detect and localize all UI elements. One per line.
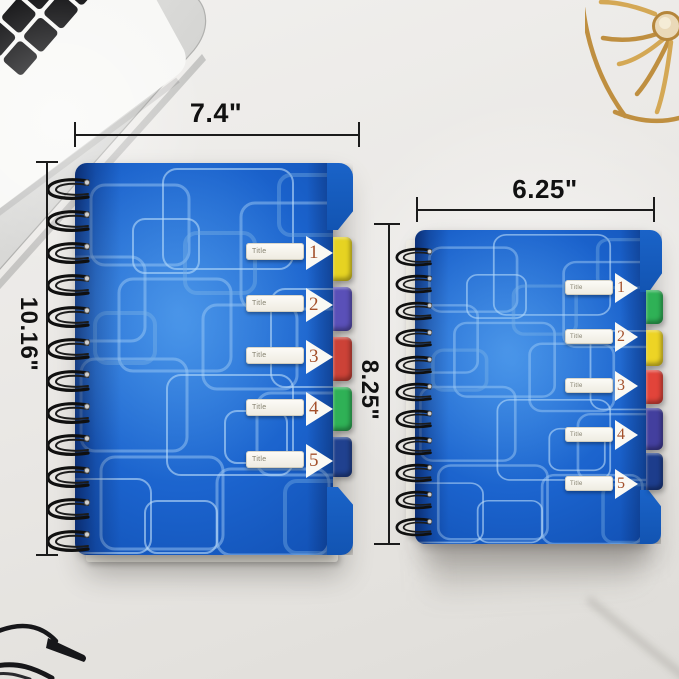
product-photo: Title 1 Title 2 Title 3 Title 4 Title 5 bbox=[0, 0, 679, 679]
tab-title-box: Title bbox=[565, 476, 613, 491]
tab-title-label: Title bbox=[246, 456, 266, 463]
tab-title-label: Title bbox=[565, 432, 583, 438]
soft-shadow bbox=[429, 538, 641, 591]
dimension-tick bbox=[36, 161, 58, 163]
dimension-tick bbox=[374, 223, 400, 225]
tab-number: 4 bbox=[309, 398, 319, 420]
dimension-line-width-small bbox=[417, 209, 655, 211]
tab-title-label: Title bbox=[246, 404, 266, 411]
tab-number: 1 bbox=[617, 279, 625, 297]
divider-side-tab-5 bbox=[646, 453, 663, 490]
tab-title-box: Title bbox=[565, 280, 613, 295]
tab-title-box: Title bbox=[246, 451, 304, 468]
dimension-line-height-small bbox=[388, 224, 390, 545]
cable-shadow bbox=[586, 597, 679, 679]
cover-corner-flap-top bbox=[327, 163, 353, 230]
tab-title-box: Title bbox=[246, 295, 304, 312]
divider-row-4: Title 4 bbox=[246, 391, 338, 427]
tab-number: 2 bbox=[309, 294, 319, 316]
divider-side-tab-4 bbox=[646, 408, 663, 450]
eyeglasses bbox=[0, 600, 120, 679]
tab-title-box: Title bbox=[246, 243, 304, 260]
tab-number: 5 bbox=[309, 450, 319, 472]
dimension-label-width-small: 6.25" bbox=[480, 174, 610, 204]
dimension-label-height-small: 8.25" bbox=[355, 325, 383, 455]
dimension-label-height-large: 10.16" bbox=[14, 269, 42, 399]
tab-number: 2 bbox=[617, 328, 625, 346]
tab-number: 3 bbox=[617, 377, 625, 395]
dimension-tick bbox=[36, 554, 58, 556]
dimension-label-width-large: 7.4" bbox=[151, 98, 281, 128]
cover-corner-flap-bottom bbox=[327, 487, 353, 555]
dimension-line-height-large bbox=[46, 162, 48, 556]
tab-number: 4 bbox=[617, 426, 625, 444]
divider-row-3: Title 3 bbox=[246, 339, 338, 375]
dimension-line-width-large bbox=[75, 134, 360, 136]
divider-side-tab-1 bbox=[646, 290, 663, 324]
tab-title-box: Title bbox=[246, 347, 304, 364]
tab-number: 5 bbox=[617, 475, 625, 493]
tab-title-box: Title bbox=[246, 399, 304, 416]
dimension-tick bbox=[653, 197, 655, 222]
divider-row-5: Title 5 bbox=[246, 443, 338, 479]
dimension-tick bbox=[374, 543, 400, 545]
tab-title-label: Title bbox=[246, 352, 266, 359]
gold-wire-basket bbox=[585, 0, 679, 125]
tab-title-label: Title bbox=[246, 248, 266, 255]
divider-row-5: Title 5 bbox=[565, 467, 645, 499]
divider-row-4: Title 4 bbox=[565, 418, 645, 450]
tab-title-label: Title bbox=[565, 334, 583, 340]
tab-number: 1 bbox=[309, 242, 319, 264]
dimension-tick bbox=[416, 197, 418, 222]
tab-title-box: Title bbox=[565, 378, 613, 393]
tab-title-label: Title bbox=[565, 383, 583, 389]
tab-number: 3 bbox=[309, 346, 319, 368]
divider-row-2: Title 2 bbox=[565, 320, 645, 352]
tab-title-box: Title bbox=[565, 329, 613, 344]
spiral-binding bbox=[390, 246, 434, 538]
dimension-tick bbox=[358, 122, 360, 147]
divider-row-1: Title 1 bbox=[246, 235, 338, 271]
tab-title-label: Title bbox=[246, 300, 266, 307]
divider-row-1: Title 1 bbox=[565, 271, 645, 303]
dimension-tick bbox=[74, 122, 76, 147]
divider-side-tab-2 bbox=[646, 330, 663, 366]
divider-row-3: Title 3 bbox=[565, 369, 645, 401]
divider-row-2: Title 2 bbox=[246, 287, 338, 323]
tab-title-box: Title bbox=[565, 427, 613, 442]
tab-title-label: Title bbox=[565, 285, 583, 291]
divider-side-tab-3 bbox=[646, 370, 663, 404]
tab-title-label: Title bbox=[565, 481, 583, 487]
